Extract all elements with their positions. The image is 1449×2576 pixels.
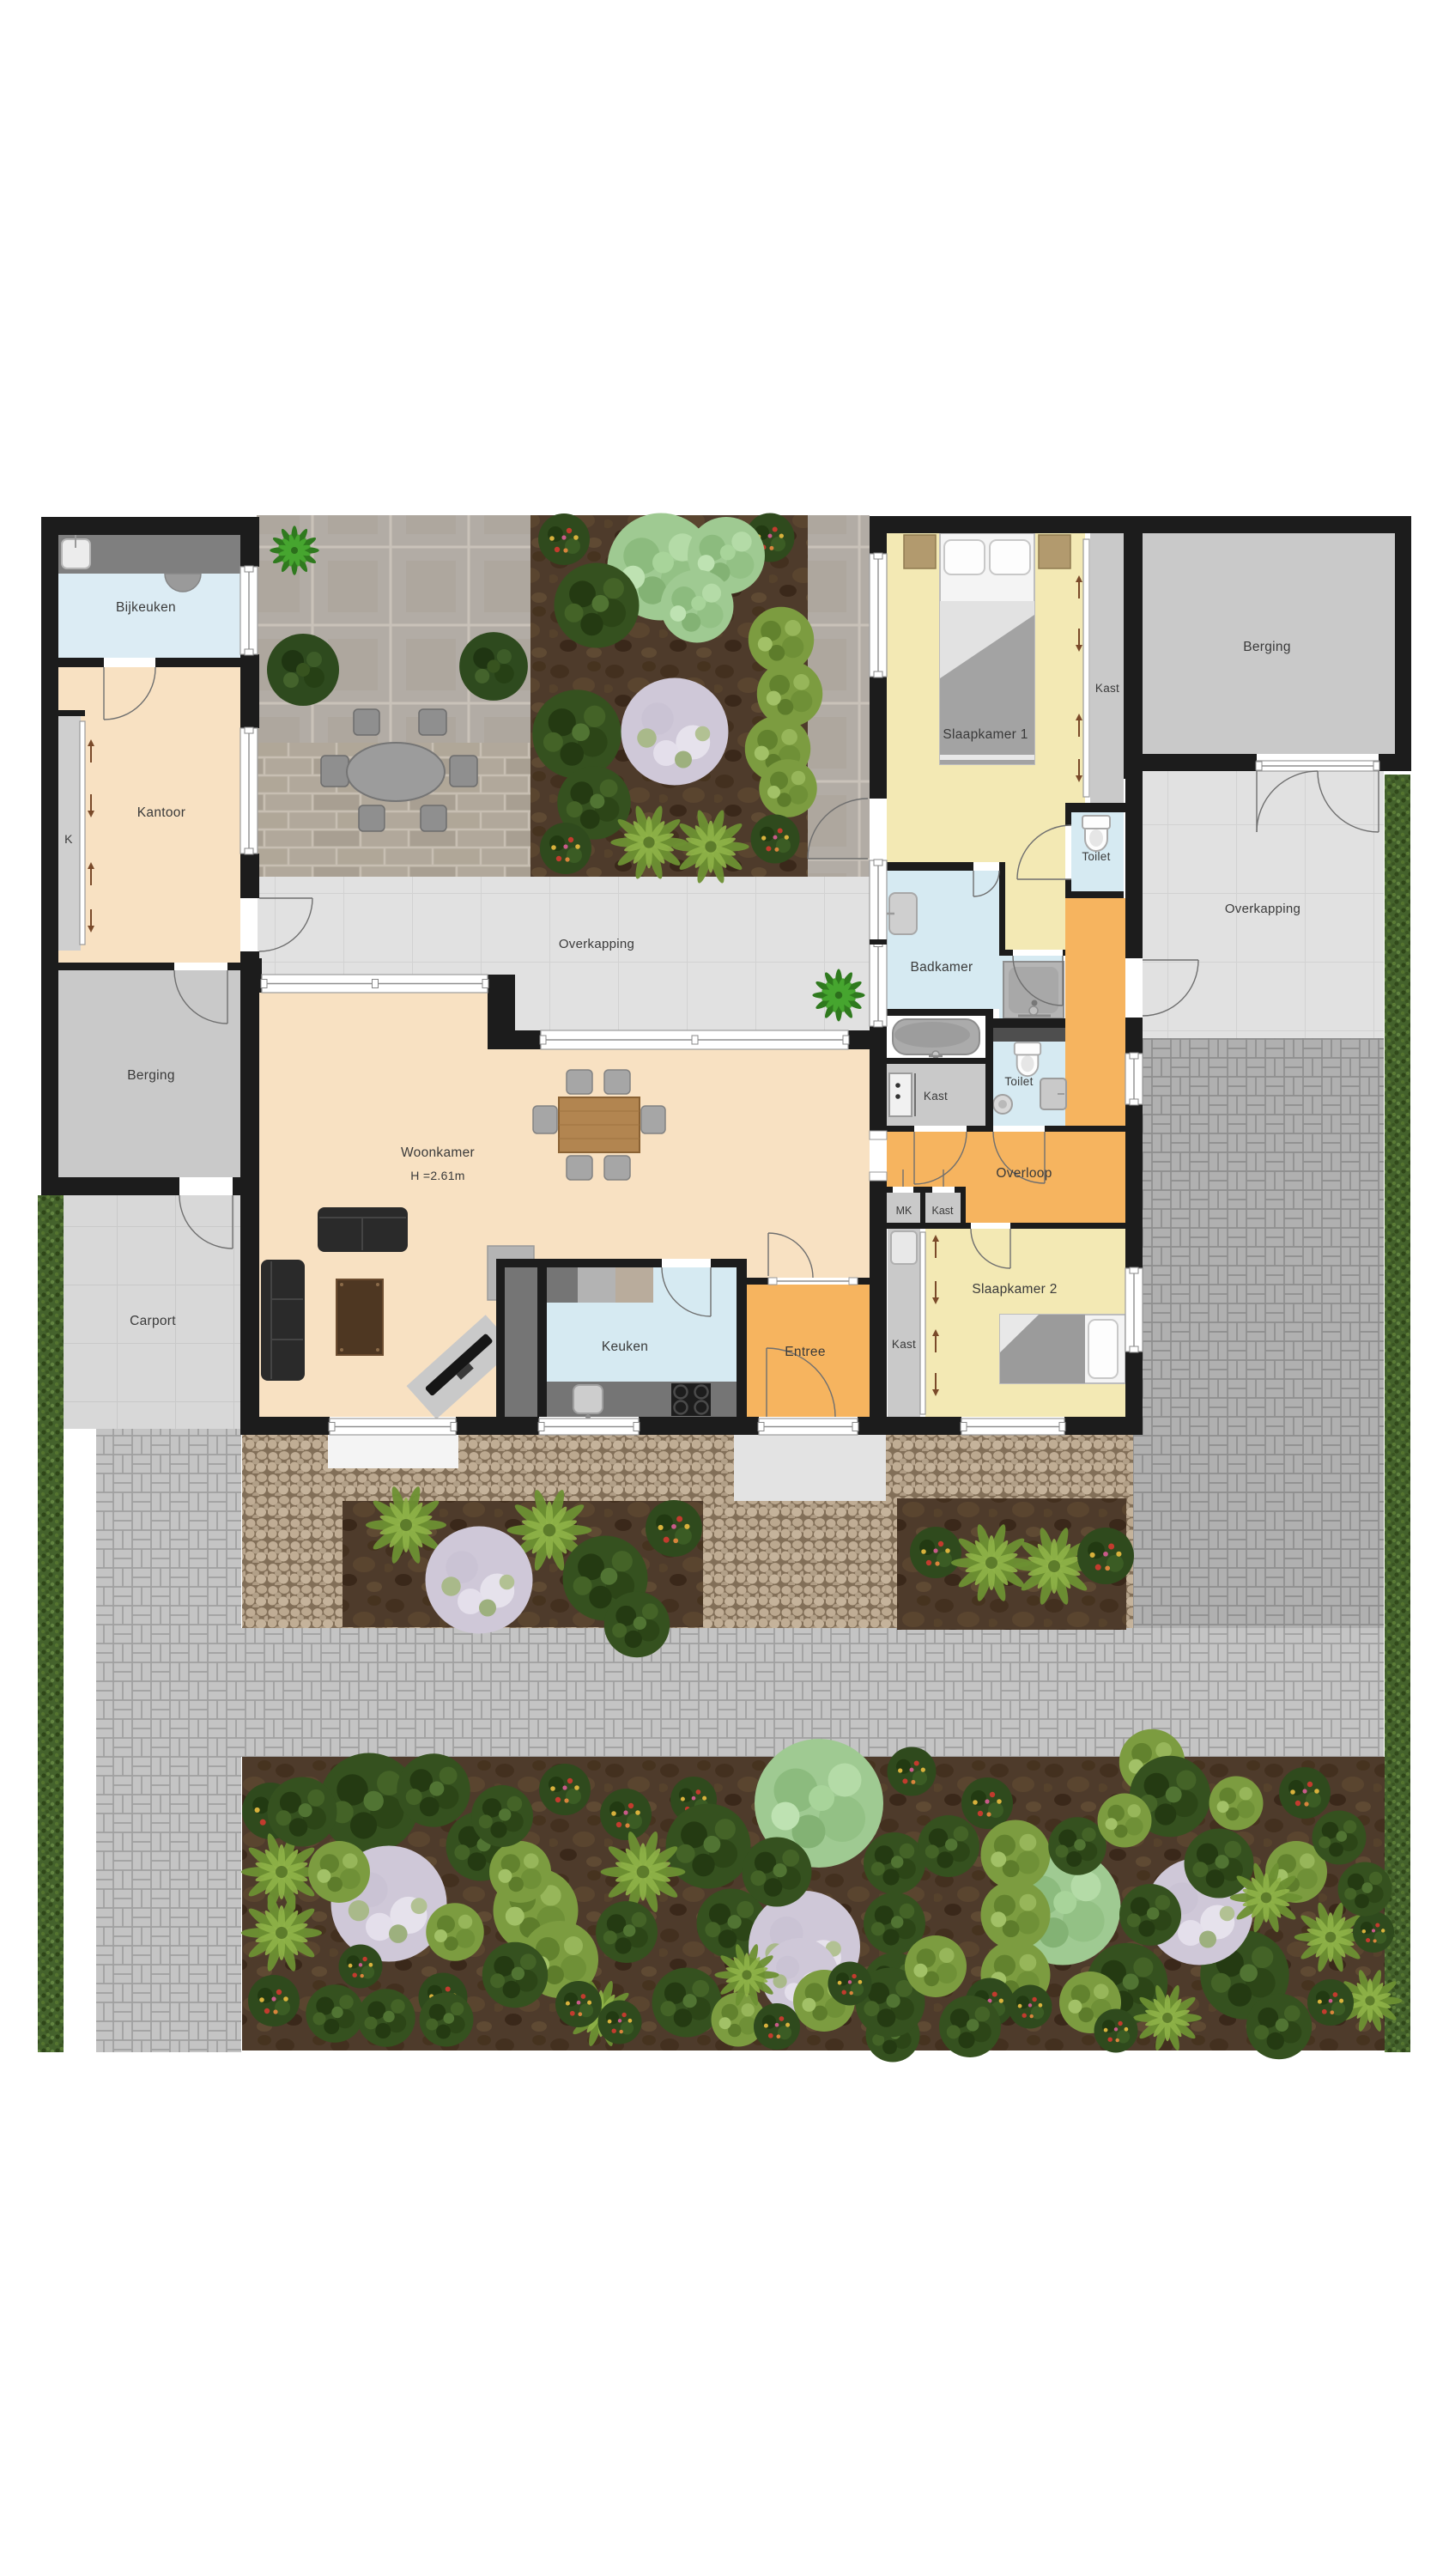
svg-text:Toilet: Toilet (1004, 1075, 1033, 1088)
svg-text:MK: MK (896, 1205, 912, 1217)
svg-text:Berging: Berging (127, 1068, 175, 1083)
svg-text:Bijkeuken: Bijkeuken (116, 600, 176, 615)
svg-text:Badkamer: Badkamer (910, 960, 973, 975)
svg-text:Kast: Kast (924, 1090, 948, 1103)
svg-text:Toilet: Toilet (1082, 850, 1110, 863)
svg-text:Slaapkamer 1: Slaapkamer 1 (943, 727, 1028, 742)
svg-text:Entree: Entree (785, 1345, 825, 1359)
svg-text:Overloop: Overloop (996, 1166, 1052, 1181)
svg-text:K: K (64, 832, 73, 846)
svg-text:Overkapping: Overkapping (1225, 902, 1300, 916)
svg-text:Kast: Kast (1095, 682, 1119, 695)
svg-text:Woonkamer: Woonkamer (401, 1145, 475, 1160)
svg-text:Berging: Berging (1243, 640, 1291, 654)
svg-text:Slaapkamer 2: Slaapkamer 2 (972, 1282, 1057, 1297)
svg-text:Kast: Kast (892, 1338, 916, 1351)
svg-text:Carport: Carport (130, 1314, 176, 1328)
svg-text:Kantoor: Kantoor (137, 805, 185, 820)
svg-text:Kast: Kast (931, 1205, 954, 1217)
svg-text:H =2.61m: H =2.61m (410, 1169, 465, 1182)
svg-text:Overkapping: Overkapping (559, 937, 634, 951)
svg-text:Keuken: Keuken (602, 1340, 648, 1354)
